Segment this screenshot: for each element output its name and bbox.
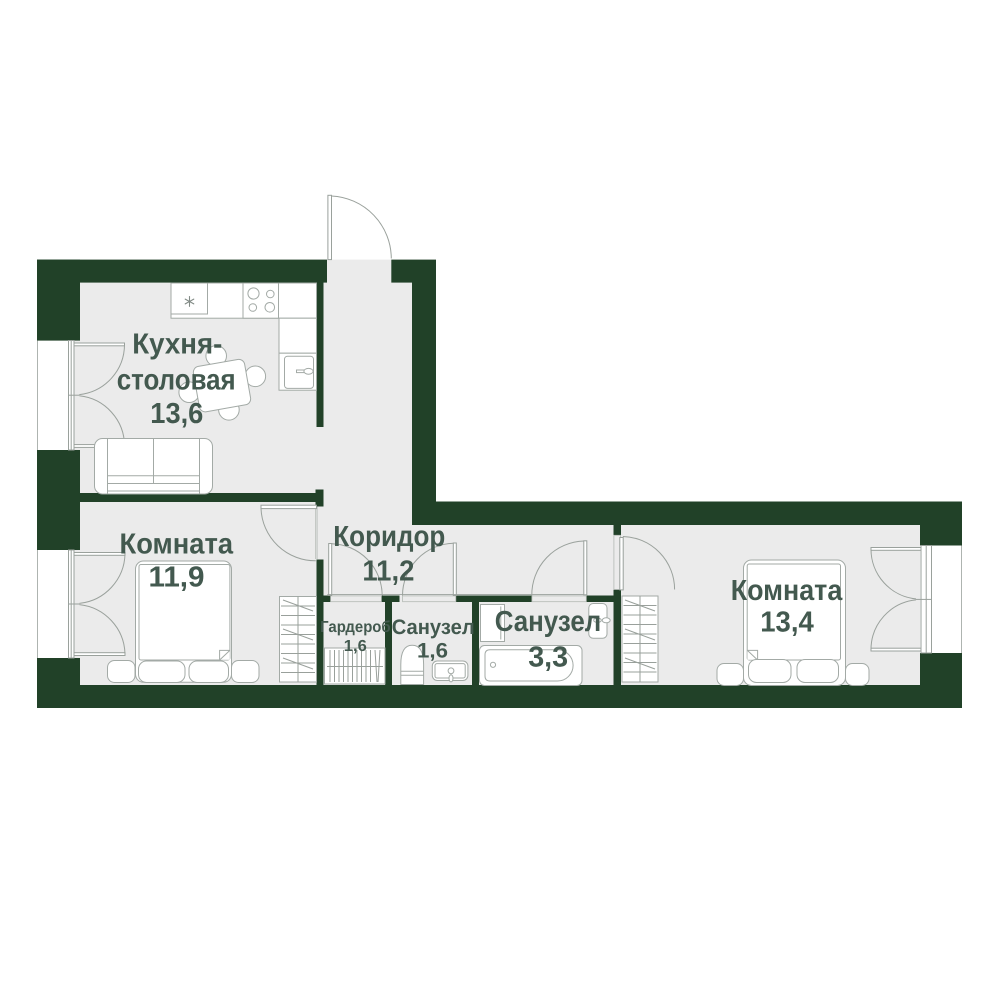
svg-text:Санузел: Санузел [495,606,602,638]
svg-text:13,6: 13,6 [150,398,203,430]
svg-text:11,9: 11,9 [149,562,205,594]
svg-text:Гардероб: Гардероб [320,619,391,636]
svg-text:Комната: Комната [120,528,234,560]
svg-text:1,6: 1,6 [417,639,448,662]
svg-text:11,2: 11,2 [362,555,414,587]
svg-text:Санузел: Санузел [392,616,475,639]
svg-text:Коридор: Коридор [333,521,445,553]
svg-text:Кухня-: Кухня- [132,328,222,360]
svg-text:3,3: 3,3 [528,641,568,673]
svg-text:13,4: 13,4 [760,607,814,639]
svg-text:столовая: столовая [117,365,236,397]
svg-text:1,6: 1,6 [344,638,367,655]
svg-text:Комната: Комната [731,575,843,607]
